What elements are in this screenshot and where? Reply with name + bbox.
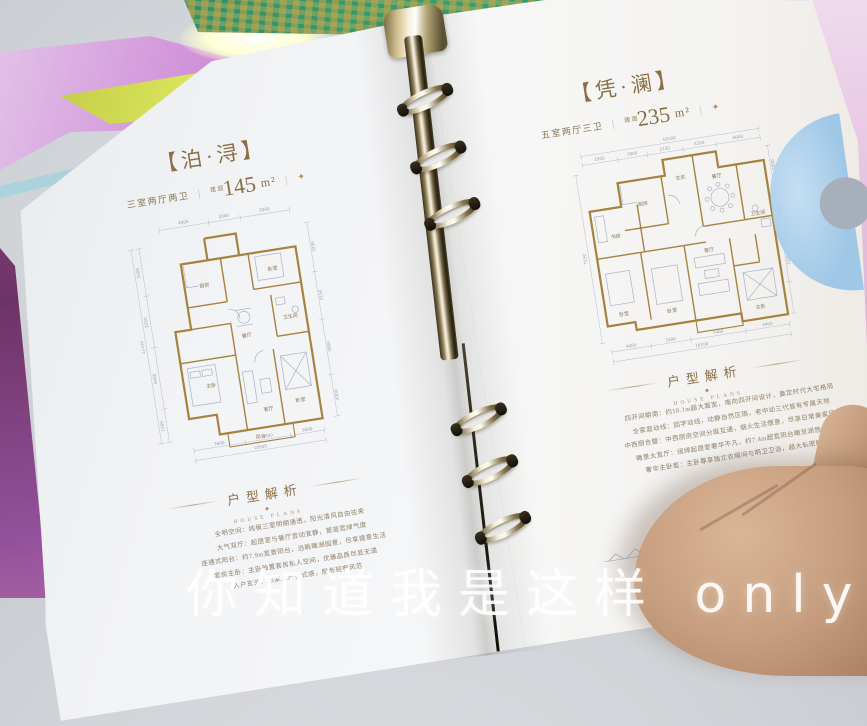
dim-label: 3250 bbox=[143, 317, 150, 329]
divider: ｜ bbox=[280, 171, 294, 188]
floor-plan-right: 18100 2950 1800 2130 3200 4000 4000 3300… bbox=[564, 119, 805, 375]
dim-label: 4000 bbox=[625, 342, 637, 349]
left-area-unit: m² bbox=[259, 173, 277, 190]
diamond-icon: ✦ bbox=[711, 101, 722, 113]
dim-label: 2150 bbox=[317, 289, 324, 301]
left-area-value: 145 bbox=[221, 171, 258, 202]
rule-line bbox=[750, 359, 803, 368]
dim-label: 4000 bbox=[732, 133, 744, 140]
room-labels: 厨房 玄关 餐厅 书房 卧室 卧室 卫生间 客厅 主卧 bbox=[599, 162, 781, 332]
room-labels: 厨房 餐厅 卧室 卫生间 主卧 客厅 卧室 阳台 bbox=[189, 262, 316, 447]
room-label: 客厅 bbox=[263, 405, 274, 413]
dim-label: 3000 bbox=[214, 440, 226, 447]
subtitle-watermark: 你知道我是这样 only to you em bbox=[186, 552, 867, 627]
dim-label: 2950 bbox=[594, 155, 606, 162]
dim-label: 18100 bbox=[695, 341, 709, 348]
dim-label: 7150 bbox=[582, 253, 589, 265]
room-label: 餐厅 bbox=[241, 331, 252, 339]
dim-label: 3250 bbox=[310, 241, 317, 253]
right-spec: 五室两厅三卫 bbox=[540, 118, 604, 141]
dim-label: 3000 bbox=[259, 206, 271, 213]
rule-line bbox=[606, 382, 659, 391]
room-label: 卧室 bbox=[619, 310, 630, 318]
rule-line bbox=[310, 478, 363, 487]
divider: ｜ bbox=[193, 184, 207, 201]
dim-label: 18100 bbox=[662, 135, 676, 142]
tab-notch bbox=[816, 174, 867, 233]
dim-label: 3200 bbox=[694, 140, 706, 147]
dim-label: 3400 bbox=[762, 321, 774, 328]
right-area-unit: m² bbox=[674, 103, 692, 120]
room-label: 卧室 bbox=[667, 306, 678, 314]
dim-label: 1800 bbox=[626, 150, 638, 157]
dim-label: 3600 bbox=[302, 426, 314, 433]
room-label: 玄关 bbox=[675, 174, 686, 182]
room-label: 书房 bbox=[610, 232, 621, 240]
right-area-value: 235 bbox=[635, 101, 672, 132]
plan-furniture bbox=[171, 249, 312, 412]
room-label: 卧室 bbox=[295, 396, 306, 404]
dim-label: 4400 bbox=[152, 373, 159, 385]
floor-plan-left: 4000 2000 3000 3000 3900 3600 10500 2500… bbox=[121, 191, 355, 476]
dim-label: 10500 bbox=[253, 443, 267, 450]
plan-walls bbox=[583, 144, 788, 346]
area-label: 建面 bbox=[624, 117, 633, 125]
dim-label: 2600 bbox=[326, 340, 333, 352]
left-spec: 三室两厅两卫 bbox=[126, 188, 190, 211]
room-label: 卫生间 bbox=[282, 312, 298, 321]
room-label: 主卧 bbox=[755, 303, 766, 311]
hand-crease bbox=[699, 484, 778, 532]
divider: ｜ bbox=[607, 115, 621, 132]
room-label: 餐厅 bbox=[711, 172, 722, 180]
area-label: 建面 bbox=[210, 187, 219, 195]
room-label: 主卧 bbox=[206, 381, 217, 389]
dim-label: 2500 bbox=[135, 267, 142, 279]
dim-label: 4000 bbox=[178, 219, 190, 226]
dim-label: 3300 bbox=[665, 336, 677, 343]
room-label: 厨房 bbox=[199, 281, 210, 289]
room-label: 客厅 bbox=[704, 246, 715, 254]
rule-line bbox=[166, 500, 219, 509]
diamond-icon: ✦ bbox=[297, 170, 308, 182]
dimension-labels: 4000 2000 3000 3000 3900 3600 10500 2500… bbox=[121, 200, 345, 466]
room-label: 卧室 bbox=[267, 264, 278, 272]
dim-label: 2000 bbox=[218, 212, 230, 219]
hand-crease bbox=[741, 462, 816, 516]
divider: ｜ bbox=[694, 101, 708, 118]
room-label: 厨房 bbox=[638, 200, 649, 208]
dim-label: 1500 bbox=[159, 420, 166, 432]
photo-open-floorplan-binder: { "left_page": { "title": "【泊·浔】", "spec… bbox=[0, 0, 867, 598]
dim-label: 2130 bbox=[659, 145, 671, 152]
dim-label: 4300 bbox=[333, 389, 340, 401]
